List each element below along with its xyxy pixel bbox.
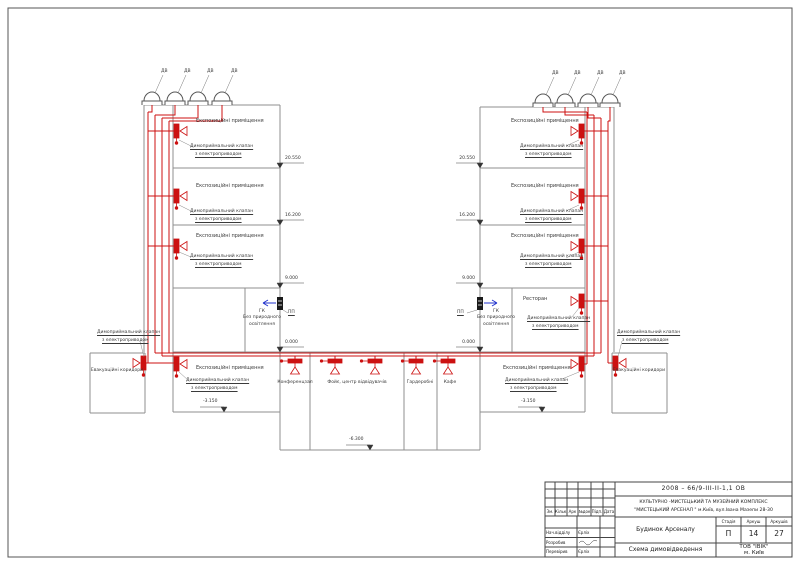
valve-note: з електроприводом (622, 338, 669, 344)
valve-note: з електроприводом (525, 262, 572, 268)
gk-note-line2: освітлення (240, 322, 284, 328)
fan-tag: ДВ (552, 71, 559, 77)
valve-note: Димоприймальний клапан (190, 209, 253, 215)
sheet-value: 14 (741, 529, 766, 538)
valve-note: Димоприймальний клапан (520, 144, 583, 150)
elevation-marks (200, 163, 545, 450)
col-header-zm: Зм. (545, 509, 555, 514)
stage-value: П (716, 529, 741, 538)
col-header-kilk: Кільк. (555, 509, 567, 514)
elevation-value: 16.200 (285, 213, 301, 219)
fan-tag: ДВ (207, 69, 214, 75)
fan-tag: ДВ (574, 71, 581, 77)
room-label-conference: Конференцзал (277, 380, 312, 386)
valve-note: Димоприймальний клапан (190, 144, 253, 150)
valve-note: Димоприймальний клапан (617, 330, 680, 336)
valve-note: Димоприймальний клапан (186, 378, 249, 384)
room-label-exhibition: Експозиційні приміщення (511, 118, 579, 124)
project-name-line2: "МИСТЕЦЬКИЙ АРСЕНАЛ " м.Київ, вул.Івана … (615, 508, 792, 514)
fan-tag: ДВ (184, 69, 191, 75)
role-developer: Розробив (546, 540, 565, 545)
valve-note: з електроприводом (525, 152, 572, 158)
col-header-doc: №док (578, 509, 591, 514)
room-label-gk: ГК Без природного освітлення (474, 309, 518, 328)
room-label-evacuation: Евакуаційні коридори (613, 368, 665, 374)
col-header-ark: Арк (567, 509, 578, 514)
object-name: Будинок Арсеналу (615, 526, 716, 534)
col-header-pidp: Підп. (591, 509, 603, 514)
room-label-gk: ГК Без природного освітлення (240, 309, 284, 328)
elevation-value: 9.000 (450, 276, 475, 282)
elevation-value: -3.150 (203, 399, 218, 405)
elevation-value: 20.550 (285, 156, 301, 162)
drawing-sheet: ДВ ДВ ДВ ДВ ДВ ДВ ДВ ДВ Експозиційні при… (0, 0, 800, 565)
valve-note: з електроприводом (195, 262, 242, 268)
elevation-value: 20.550 (450, 156, 475, 162)
stage-label: Стадія (716, 519, 741, 524)
valve-note: з електроприводом (532, 324, 579, 330)
sheets-value: 27 (766, 529, 792, 538)
fan-tag: ДВ (619, 71, 626, 77)
valve-note: з електроприводом (102, 338, 149, 344)
elevation-value: 16.200 (450, 213, 475, 219)
room-label-exhibition: Експозиційні приміщення (503, 365, 571, 371)
room-label-foyer: Фойє, центр відвідувачів (327, 380, 386, 386)
fan-tag: ДВ (161, 69, 168, 75)
room-label-restaurant: Ресторан (523, 296, 547, 302)
signature-scribble (579, 540, 597, 545)
name-checker: Єрліх (578, 549, 589, 554)
role-dept-head: Нач.відділу (546, 530, 570, 535)
valve-note: Димоприймальний клапан (527, 316, 590, 322)
valve-note: Димоприймальний клапан (505, 378, 568, 384)
gk-note-line2: освітлення (474, 322, 518, 328)
name-dept-head: Єрліх (578, 530, 589, 535)
room-label-exhibition: Експозиційні приміщення (196, 365, 264, 371)
building-walls (90, 105, 667, 450)
valve-note: Димоприймальний клапан (520, 254, 583, 260)
sheet-name: Схема димовідведення (615, 546, 716, 554)
elevation-value: -6.300 (349, 437, 364, 443)
room-label-exhibition: Експозиційні приміщення (196, 233, 264, 239)
valve-note: з електроприводом (195, 217, 242, 223)
elevation-value: 9.000 (285, 276, 298, 282)
room-label-cafe: Кафе (444, 380, 457, 386)
valve-note: Димоприймальний клапан (97, 330, 160, 336)
room-label-wardrobe: Гардеробні (407, 380, 434, 386)
gk-note-line1: Без природного (474, 315, 518, 321)
room-label-exhibition: Експозиційні приміщення (511, 183, 579, 189)
ceiling-damper-icons (280, 359, 455, 374)
valve-note: Димоприймальний клапан (520, 209, 583, 215)
frame (8, 8, 792, 557)
col-header-data: Дата (603, 509, 615, 514)
valve-note: з електроприводом (191, 386, 238, 392)
fan-tag: ДВ (597, 71, 604, 77)
elevation-value: -3.150 (521, 399, 536, 405)
project-name-line1: КУЛЬТУРНО -МИСТЕЦЬКИЙ ТА МУЗЕЙНИЙ КОМПЛЕ… (615, 500, 792, 506)
sheets-label: Аркушів (766, 519, 792, 524)
room-label-exhibition: Експозиційні приміщення (196, 118, 264, 124)
smoke-valve-icons (133, 124, 626, 377)
schematic-canvas (0, 0, 800, 565)
role-checker: Перевірив (546, 549, 567, 554)
gk-note-line1: Без природного (240, 315, 284, 321)
fan-label-leaders (155, 75, 621, 95)
sheet-label: Аркуш (741, 519, 766, 524)
valve-note: з електроприводом (525, 217, 572, 223)
valve-note: з електроприводом (510, 386, 557, 392)
fire-damper-tag: ПП (288, 310, 295, 316)
valve-note: з електроприводом (195, 152, 242, 158)
roof-fan-icons (142, 92, 620, 107)
room-label-evacuation: Евакуаційні коридори (91, 368, 143, 374)
room-label-exhibition: Експозиційні приміщення (196, 183, 264, 189)
note-leaders (140, 140, 622, 380)
elevation-value: 0.000 (285, 340, 298, 346)
room-label-exhibition: Експозиційні приміщення (511, 233, 579, 239)
elevation-value: 0.000 (450, 340, 475, 346)
doc-number: 2008 – 66/9-ІІІ-ІІ-1,1 ОВ (615, 485, 792, 493)
fire-damper-tag: ПП (457, 310, 464, 316)
company-city: м. Київ (716, 550, 792, 557)
fan-tag: ДВ (231, 69, 238, 75)
valve-note: Димоприймальний клапан (190, 254, 253, 260)
